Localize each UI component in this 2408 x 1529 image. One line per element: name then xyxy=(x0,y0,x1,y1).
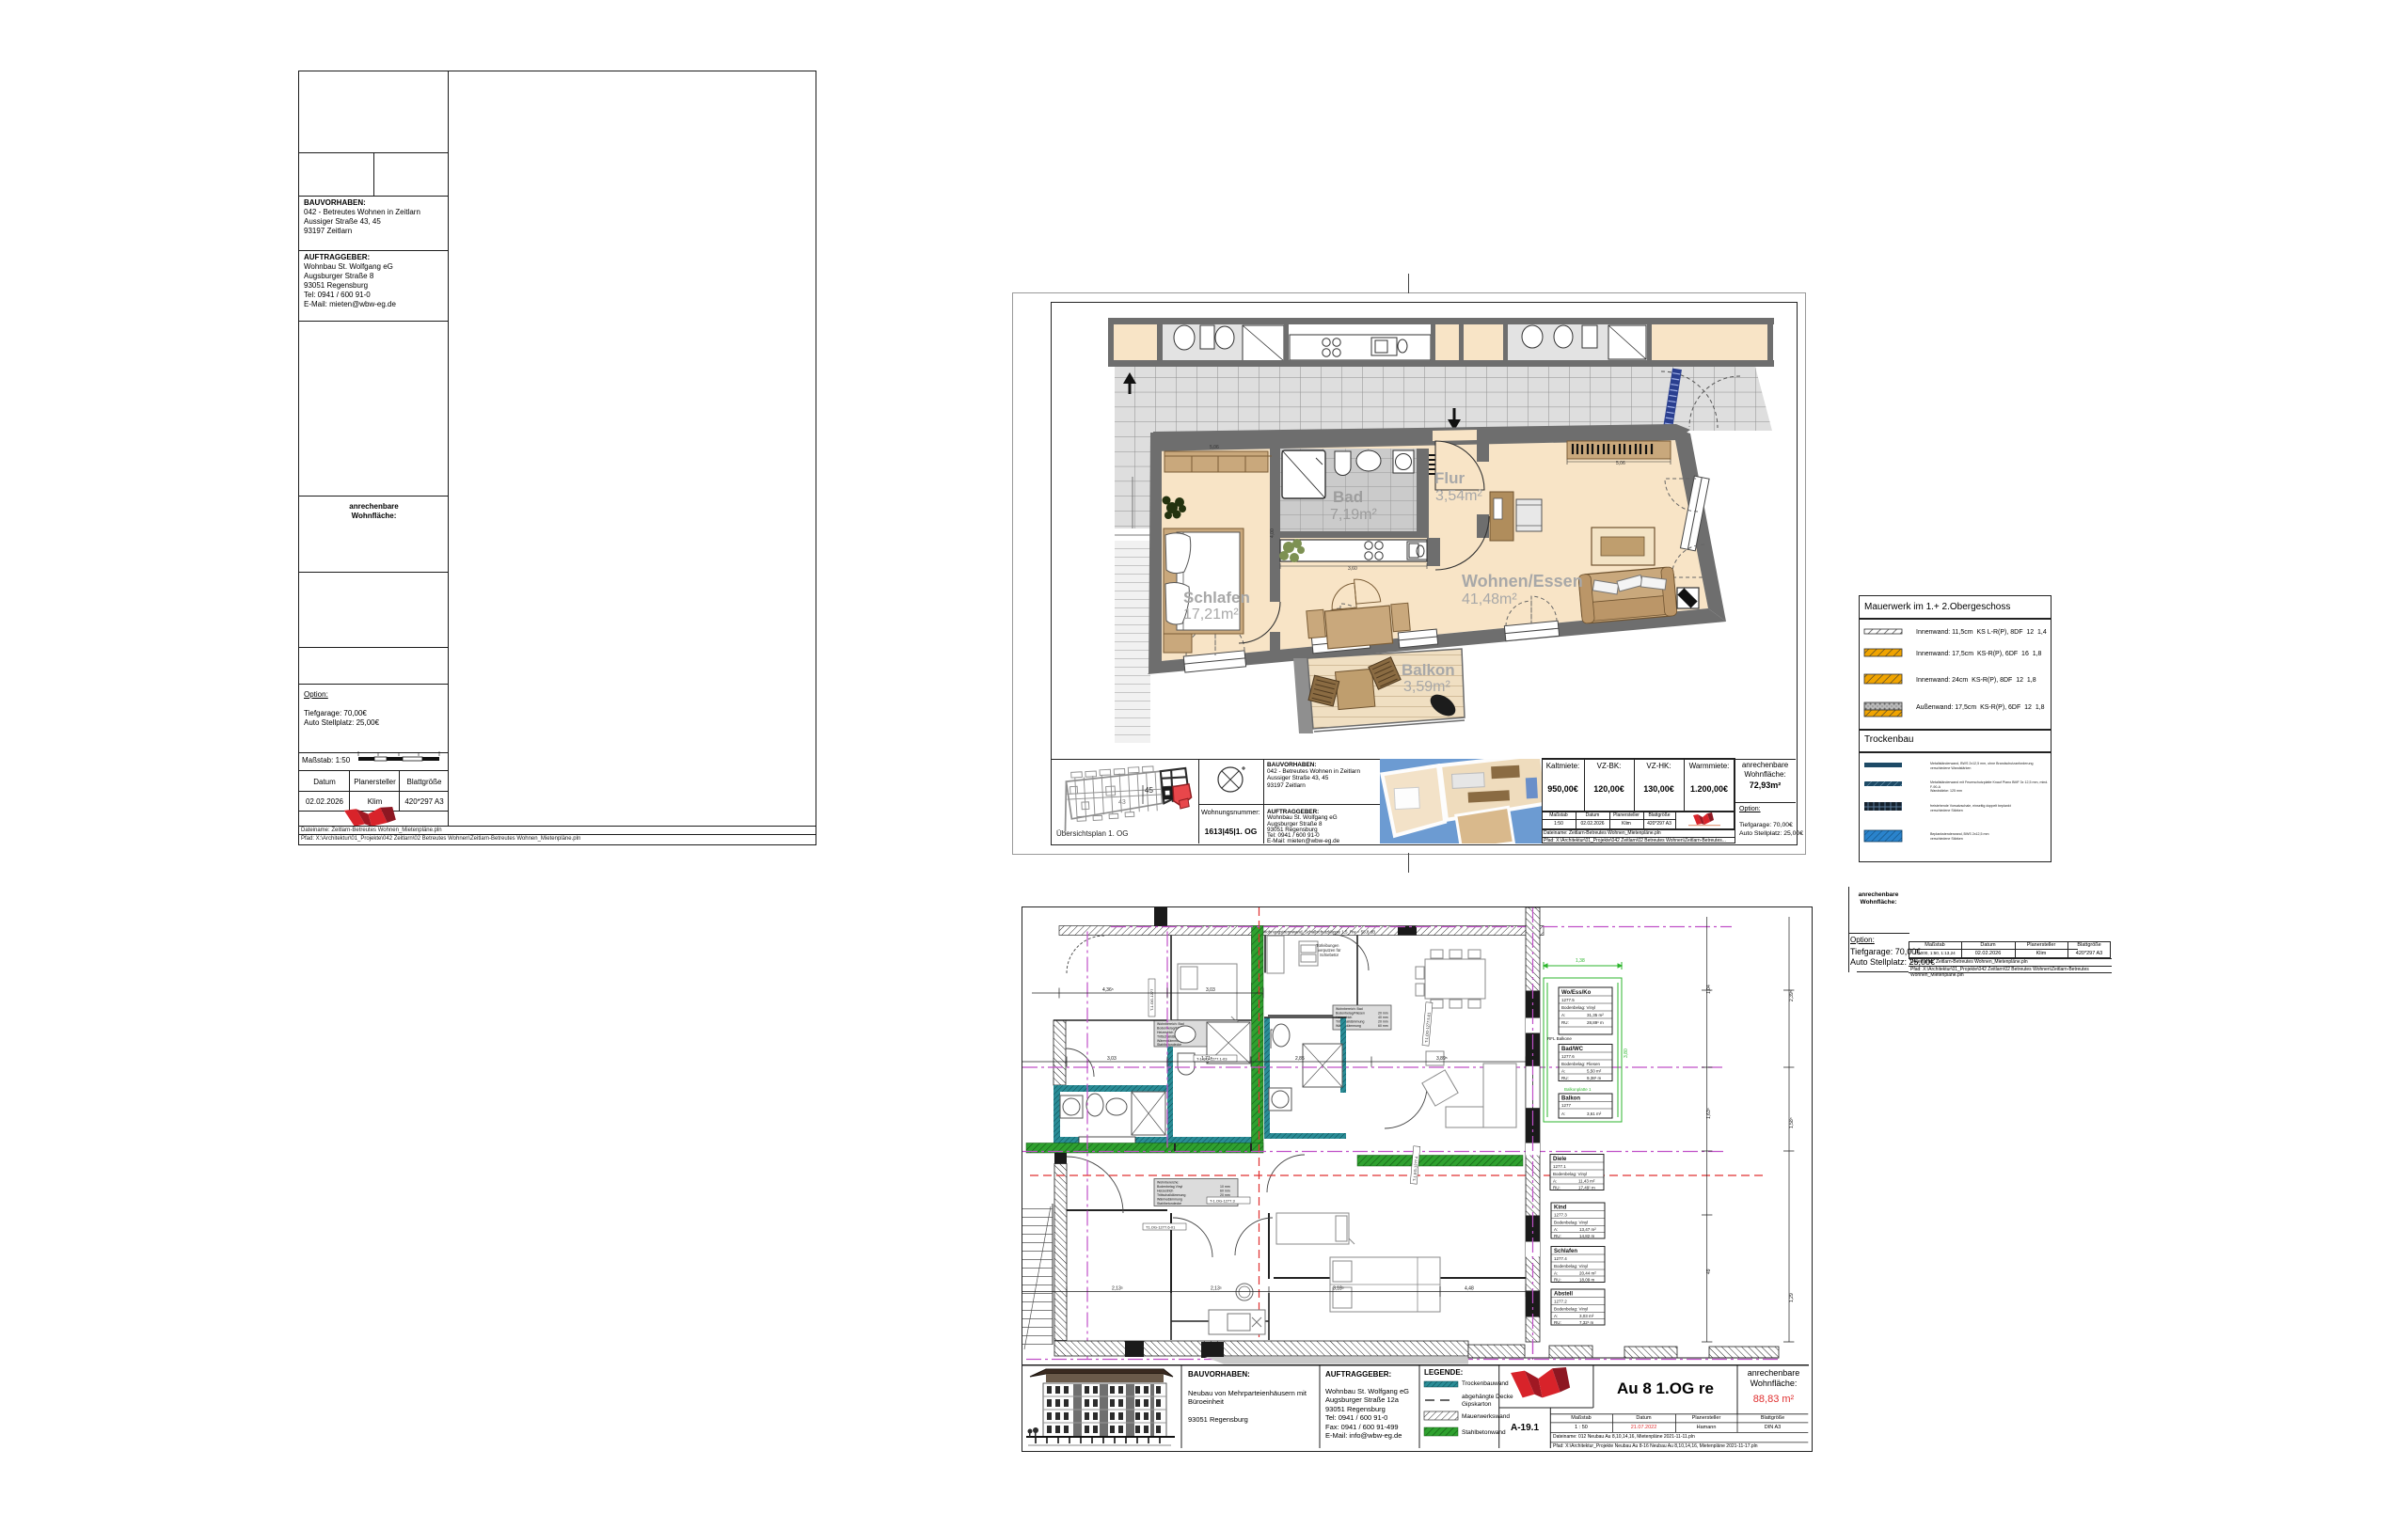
svg-text:1,63⁵: 1,63⁵ xyxy=(1706,1108,1712,1119)
svg-text:Wärmedämmung: Wärmedämmung xyxy=(1336,1024,1361,1028)
svg-text:Bodenbelag/Fliesen: Bodenbelag/Fliesen xyxy=(1336,1012,1365,1016)
svg-text:4,48: 4,48 xyxy=(1465,1286,1474,1292)
svg-text:1277.5: 1277.5 xyxy=(1561,998,1575,1002)
svg-text:1277.6: 1277.6 xyxy=(1561,1054,1575,1059)
svg-text:RU:: RU: xyxy=(1554,1278,1561,1283)
svg-text:7,19m²: 7,19m² xyxy=(1330,507,1377,523)
svg-text:Wärmedämmung: Wärmedämmung xyxy=(1157,1198,1182,1202)
svg-text:Balkonplatte 1: Balkonplatte 1 xyxy=(1564,1087,1592,1092)
svg-text:Wohnbereiche:: Wohnbereiche: xyxy=(1157,1181,1180,1185)
svg-text:RFL Balkone: RFL Balkone xyxy=(1547,1036,1572,1041)
svg-text:RU:: RU: xyxy=(1561,1076,1569,1080)
svg-text:1,29: 1,29 xyxy=(1789,1293,1795,1302)
svg-text:3,89⁵: 3,89⁵ xyxy=(1436,1056,1448,1062)
svg-text:Abstell: Abstell xyxy=(1554,1292,1573,1298)
svg-text:A:: A: xyxy=(1561,1069,1565,1074)
svg-text:Diele: Diele xyxy=(1553,1157,1567,1162)
svg-text:A:: A: xyxy=(1554,1314,1558,1318)
svg-text:1277.4: 1277.4 xyxy=(1554,1256,1567,1261)
svg-text:20 mm: 20 mm xyxy=(1378,1020,1388,1024)
svg-text:5,50 m²: 5,50 m² xyxy=(1587,1069,1602,1074)
svg-text:3,03 m²: 3,03 m² xyxy=(1579,1314,1594,1318)
svg-text:1277.3: 1277.3 xyxy=(1554,1213,1567,1218)
svg-text:2,85: 2,85 xyxy=(1295,1056,1305,1062)
svg-text:20 mm: 20 mm xyxy=(1378,1012,1388,1016)
svg-text:5,06: 5,06 xyxy=(1210,445,1219,450)
svg-text:RU:: RU: xyxy=(1554,1234,1561,1238)
svg-text:1,38: 1,38 xyxy=(1576,958,1585,964)
svg-text:3,59m²: 3,59m² xyxy=(1403,679,1450,695)
svg-text:Bad: Bad xyxy=(1333,488,1363,506)
svg-text:Bodenbelag: Vinyl: Bodenbelag: Vinyl xyxy=(1561,1005,1595,1010)
svg-text:Wohnen/Essen: Wohnen/Essen xyxy=(1462,572,1583,591)
svg-text:2,13⁵: 2,13⁵ xyxy=(1211,1286,1222,1292)
svg-text:40 mm: 40 mm xyxy=(1378,1016,1388,1019)
svg-text:Wohnbereich: Bad: Wohnbereich: Bad xyxy=(1336,1007,1363,1011)
svg-text:Kind: Kind xyxy=(1554,1206,1567,1211)
svg-text:2,39⁵: 2,39⁵ xyxy=(1789,990,1795,1001)
svg-text:2,13⁵: 2,13⁵ xyxy=(1112,1286,1123,1292)
svg-text:Balkon: Balkon xyxy=(1561,1096,1580,1102)
svg-text:Wohnbereich: Bad: Wohnbereich: Bad xyxy=(1157,1022,1184,1026)
svg-text:3,60: 3,60 xyxy=(1348,566,1357,572)
svg-text:T-1.OG-1277.3: T-1.OG-1277.3 xyxy=(1210,1199,1235,1204)
svg-text:Bodenbelag: Vinyl: Bodenbelag: Vinyl xyxy=(1553,1172,1587,1176)
svg-text:A:: A: xyxy=(1554,1271,1558,1276)
svg-text:4,36⁵: 4,36⁵ xyxy=(1102,987,1114,993)
svg-text:13,47 m²: 13,47 m² xyxy=(1579,1227,1596,1232)
svg-text:1277.2: 1277.2 xyxy=(1554,1300,1567,1304)
svg-text:Balkon: Balkon xyxy=(1402,661,1455,679)
svg-text:1,04: 1,04 xyxy=(1706,985,1712,994)
svg-text:Schlafen: Schlafen xyxy=(1183,589,1250,607)
svg-text:3,18⁵: 3,18⁵ xyxy=(1333,1286,1344,1292)
svg-text:Flur: Flur xyxy=(1434,469,1465,487)
svg-text:4,00: 4,00 xyxy=(1270,528,1275,538)
svg-text:Bodenbelag Vinyl: Bodenbelag Vinyl xyxy=(1157,1185,1182,1189)
svg-text:Bodenbelag: Fliesen: Bodenbelag: Fliesen xyxy=(1561,1062,1601,1066)
svg-text:RU:: RU: xyxy=(1554,1320,1561,1325)
svg-text:Bad/WC: Bad/WC xyxy=(1561,1047,1584,1052)
svg-text:Wo/Ess/Ko: Wo/Ess/Ko xyxy=(1561,990,1592,996)
svg-text:60 mm: 60 mm xyxy=(1220,1190,1230,1193)
svg-text:31,35 m²: 31,35 m² xyxy=(1587,1013,1604,1017)
svg-text:A:: A: xyxy=(1561,1111,1565,1116)
svg-text:7,32¹ m: 7,32¹ m xyxy=(1579,1320,1594,1325)
svg-text:Trittschalldämmung: Trittschalldämmung xyxy=(1336,1020,1364,1024)
svg-text:Übersichtsplan 1. OG: Übersichtsplan 1. OG xyxy=(1056,829,1128,838)
svg-text:Heizestrich: Heizestrich xyxy=(1157,1190,1173,1193)
svg-text:3,54m²: 3,54m² xyxy=(1435,488,1482,504)
svg-text:1,58⁵: 1,58⁵ xyxy=(1789,1117,1795,1128)
svg-text:10 mm: 10 mm xyxy=(1220,1185,1230,1189)
svg-text:T1.OG-1277.6-01: T1.OG-1277.6-01 xyxy=(1146,1225,1176,1230)
svg-text:49: 49 xyxy=(1706,1269,1712,1274)
svg-text:Trittschalldämmung: Trittschalldämmung xyxy=(1157,1193,1185,1197)
svg-text:Bodenbelag: Vinyl: Bodenbelag: Vinyl xyxy=(1554,1307,1588,1312)
svg-text:Stahlbetondecke: Stahlbetondecke xyxy=(1157,1043,1181,1047)
svg-text:Wohnungstrennwand_Schallschutz: Wohnungstrennwand_Schallschutzklasse 1,5… xyxy=(1262,930,1375,935)
svg-text:41,48m²: 41,48m² xyxy=(1462,591,1517,607)
svg-text:3,80: 3,80 xyxy=(1624,1048,1629,1058)
svg-text:RU:: RU: xyxy=(1553,1186,1560,1190)
svg-text:17,21m²: 17,21m² xyxy=(1183,607,1239,623)
svg-text:Bodenbelag: Vinyl: Bodenbelag: Vinyl xyxy=(1554,1221,1588,1225)
svg-text:T-1.OG-1277: T-1.OG-1277 xyxy=(1149,988,1154,1011)
svg-text:11,43 m²: 11,43 m² xyxy=(1578,1179,1595,1184)
svg-text:A:: A: xyxy=(1553,1179,1557,1184)
svg-text:18,09 m: 18,09 m xyxy=(1579,1278,1595,1283)
svg-text:Stahlbetondecke: Stahlbetondecke xyxy=(1157,1202,1181,1206)
svg-text:20 mm: 20 mm xyxy=(1220,1193,1230,1197)
svg-text:A:: A: xyxy=(1561,1013,1565,1017)
svg-text:Heizestrich: Heizestrich xyxy=(1157,1031,1173,1034)
svg-text:1277.1: 1277.1 xyxy=(1553,1164,1566,1169)
svg-text:9,38¹ m: 9,38¹ m xyxy=(1587,1076,1602,1080)
svg-text:45: 45 xyxy=(1145,786,1153,795)
svg-text:17,49¹ m: 17,49¹ m xyxy=(1578,1186,1595,1190)
svg-text:28,89¹ m: 28,89¹ m xyxy=(1587,1020,1604,1025)
svg-text:3,03: 3,03 xyxy=(1107,1056,1117,1062)
svg-text:Bodenbelag: Vinyl: Bodenbelag: Vinyl xyxy=(1554,1264,1588,1269)
svg-text:43: 43 xyxy=(1118,799,1126,806)
svg-text:Schiebetür: Schiebetür xyxy=(1320,953,1339,957)
svg-text:14,82 m: 14,82 m xyxy=(1579,1234,1595,1238)
svg-text:1,71⁵: 1,71⁵ xyxy=(1201,1056,1212,1062)
svg-text:3,03: 3,03 xyxy=(1206,987,1215,993)
svg-text:Schlafen: Schlafen xyxy=(1554,1249,1577,1254)
svg-text:60 mm: 60 mm xyxy=(1378,1024,1388,1028)
svg-text:20,44 m²: 20,44 m² xyxy=(1579,1271,1596,1276)
svg-text:1277: 1277 xyxy=(1561,1103,1572,1108)
svg-text:RU:: RU: xyxy=(1561,1020,1569,1025)
svg-text:3,61 m²: 3,61 m² xyxy=(1587,1111,1602,1116)
svg-text:A:: A: xyxy=(1554,1227,1558,1232)
